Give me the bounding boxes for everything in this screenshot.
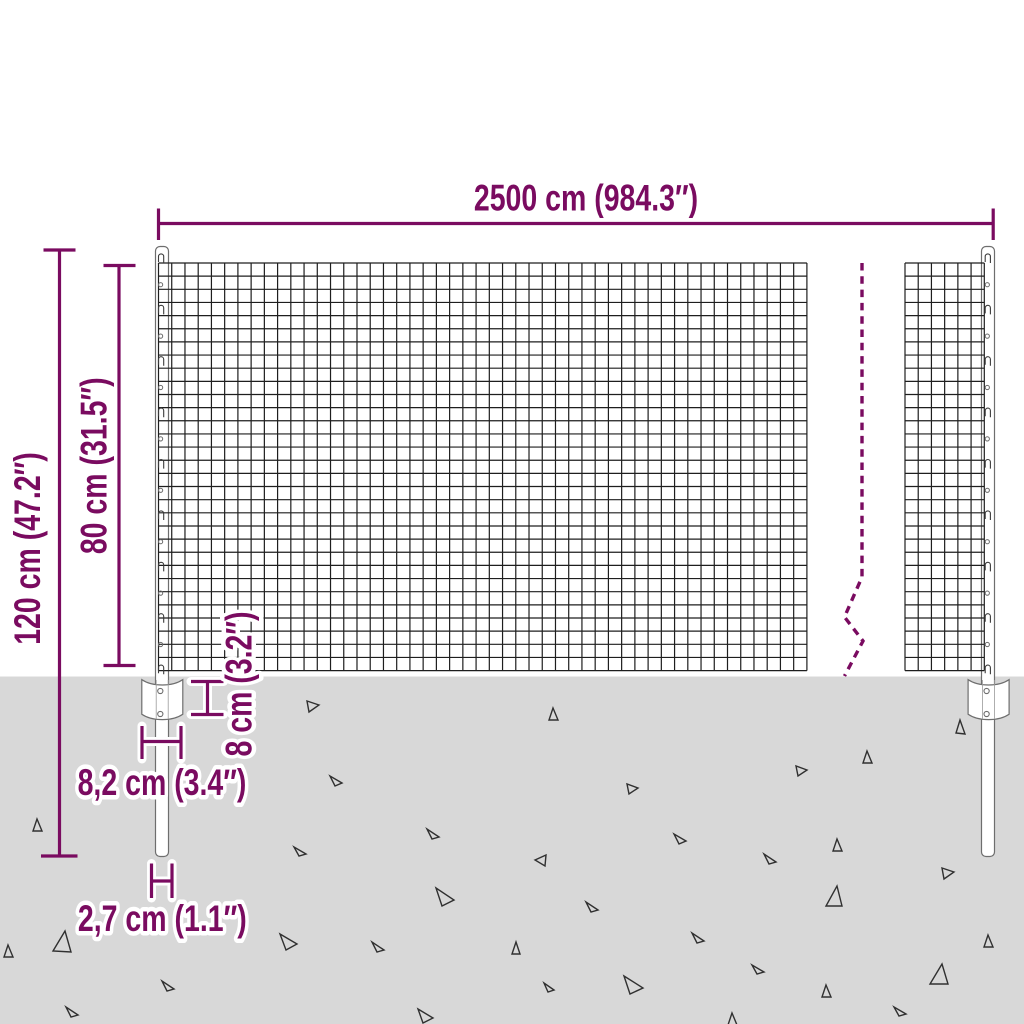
svg-text:2,7 cm (1.1″): 2,7 cm (1.1″) [78,897,247,938]
svg-text:8 cm (3.2″): 8 cm (3.2″) [218,611,259,756]
svg-text:80 cm (31.5″): 80 cm (31.5″) [73,377,114,554]
svg-text:120 cm (47.2″): 120 cm (47.2″) [6,452,47,645]
svg-text:2500 cm (984.3″): 2500 cm (984.3″) [474,177,698,218]
svg-text:8,2 cm (3.4″): 8,2 cm (3.4″) [78,761,247,802]
